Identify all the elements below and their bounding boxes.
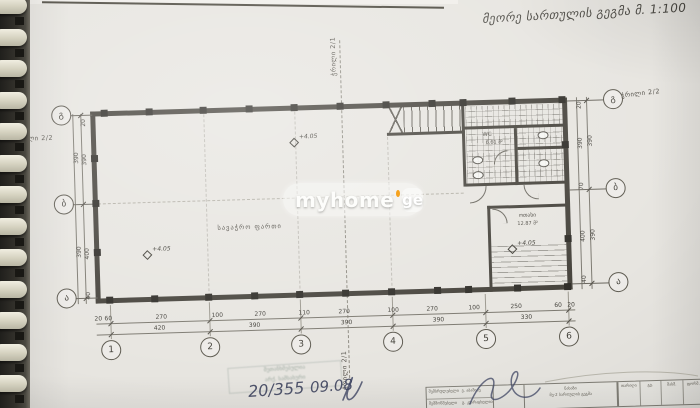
column-marker	[428, 100, 435, 107]
dim-label: 270	[254, 311, 266, 318]
wall-bottom	[96, 284, 573, 303]
stair-break-mark	[386, 106, 405, 133]
comb-binding	[0, 0, 30, 408]
wc-area: 6.61 მ²	[485, 139, 503, 146]
grid-bubble-column: 3	[291, 334, 312, 355]
binding-ring	[0, 92, 27, 109]
binding-slot	[15, 364, 24, 372]
section-label-top: ჭრილი 2/1	[329, 37, 338, 76]
column-marker	[106, 297, 113, 304]
dim-label: 390	[341, 319, 353, 326]
dim-line	[576, 97, 583, 289]
elevation-value: +4.05	[152, 245, 171, 253]
binding-ring	[0, 218, 27, 235]
centerline	[203, 114, 209, 296]
title-block-signature-space	[493, 385, 525, 408]
tb-col-header: თარიღი	[618, 381, 640, 406]
column-marker	[459, 99, 466, 106]
tb-name: ვ. აბაშიძე	[459, 386, 492, 398]
binding-ring	[0, 312, 27, 329]
column-marker	[336, 103, 343, 110]
room-label: ოთახი	[519, 212, 536, 219]
binding-ring	[0, 29, 27, 46]
handwritten-date: 09.08	[309, 376, 353, 397]
dim-label: 270	[426, 305, 438, 312]
hall-label: სავაჭრო ფართი	[217, 222, 282, 232]
column-marker	[514, 284, 521, 291]
column-marker	[151, 295, 158, 302]
grid-bubble-row: ბ	[605, 178, 626, 199]
tb-col-header: ფორმ.	[683, 380, 700, 405]
tb-name: გ. კვარაცხელია	[460, 398, 493, 408]
dim-label: 390	[589, 229, 596, 241]
elevation-value: +4.05	[299, 133, 318, 141]
binding-ring	[0, 155, 27, 172]
binding-ring	[0, 60, 27, 77]
binding-slot	[15, 80, 24, 88]
door-arc	[470, 186, 487, 203]
column-marker	[465, 286, 472, 293]
grid-bubble-column: 1	[101, 340, 122, 361]
binding-slot	[15, 143, 24, 151]
door-arc	[524, 184, 539, 199]
column-marker	[251, 292, 258, 299]
wc-label: WC	[482, 132, 491, 138]
dim-label: 390	[587, 135, 594, 147]
tb-role: შემსრულებელი	[426, 387, 459, 399]
binding-ring	[0, 249, 27, 266]
wall-left	[90, 112, 101, 304]
binding-slot	[15, 49, 24, 57]
grid-bubble-row: გ	[51, 105, 72, 126]
binding-slot	[15, 238, 24, 246]
dim-label: 400	[84, 248, 91, 260]
column-marker	[92, 200, 99, 207]
dim-label: 40	[581, 275, 588, 283]
watermark-tld: ge	[402, 188, 423, 212]
watermark-dot-icon	[396, 190, 400, 197]
column-marker	[101, 110, 108, 117]
dim-label: 20	[80, 119, 87, 127]
binding-ring	[0, 123, 27, 140]
elevation-mark-icon	[142, 250, 152, 260]
title-block: შემსრულებელივ. აბაშიძე შემმოწმებელიგ. კვ…	[425, 379, 700, 408]
grid-bubble-row: ბ	[54, 194, 75, 215]
grid-bubble-row: ა	[608, 272, 629, 293]
watermark-brand: myhome	[295, 188, 394, 212]
column-marker	[388, 288, 395, 295]
room-hatch	[491, 241, 567, 289]
dim-label: 100	[468, 304, 480, 311]
staircase	[403, 105, 464, 133]
dim-label: 70	[578, 182, 585, 190]
column-marker	[200, 107, 207, 114]
dim-label: 390	[73, 152, 80, 164]
dim-label: 390	[76, 246, 83, 258]
dim-label: 60	[104, 315, 112, 322]
column-marker	[562, 141, 569, 148]
dim-label: 420	[154, 325, 166, 332]
binding-ring	[0, 344, 27, 361]
dim-label: 390	[433, 316, 445, 323]
column-marker	[246, 105, 253, 112]
watermark: myhome ge	[283, 183, 423, 216]
column-marker	[564, 283, 571, 290]
column-marker	[296, 291, 303, 298]
dim-label: 100	[387, 307, 399, 314]
dim-label: 270	[338, 308, 350, 315]
grid-bubble-column: 2	[200, 337, 221, 358]
binding-slot	[15, 301, 24, 309]
binding-slot	[15, 332, 24, 340]
binding-ring	[0, 186, 27, 203]
dim-label: 110	[298, 309, 310, 316]
column-marker	[342, 290, 349, 297]
column-marker	[146, 108, 153, 115]
dim-label: 330	[521, 314, 533, 321]
binding-slot	[15, 206, 24, 214]
photo-of-floor-plan: მეორე სართულის გეგმა მ. 1:100 ჭრილი 2/1 …	[0, 0, 700, 408]
elevation-mark-icon	[289, 138, 299, 148]
door-arc	[492, 208, 507, 223]
dim-label: 400	[579, 230, 586, 242]
dim-line	[80, 114, 87, 304]
tb-col-header: გვ.	[640, 381, 662, 406]
binding-slot	[15, 112, 24, 120]
grid-bubble-column: 5	[476, 329, 497, 350]
column-marker	[508, 98, 515, 105]
column-marker	[558, 96, 565, 103]
binding-slot	[15, 17, 24, 25]
grid-bubble-row: ა	[56, 288, 77, 309]
tb-col-header: მასშ.	[661, 380, 683, 405]
column-marker	[382, 101, 389, 108]
dim-label: 250	[510, 303, 522, 310]
dim-label: 20	[94, 315, 102, 322]
binding-slot	[15, 395, 24, 403]
dim-label: 20	[576, 101, 583, 109]
dim-label: 100	[211, 312, 223, 319]
dim-line	[97, 320, 576, 335]
binding-ring	[0, 0, 27, 14]
dim-label: 60	[554, 302, 562, 309]
dim-label: 20	[567, 301, 575, 308]
dim-line	[586, 97, 593, 289]
title-block-columns: თარიღიგვ.მასშ.ფორმ.	[618, 380, 700, 407]
column-marker	[94, 249, 101, 256]
grid-bubble-row: გ	[603, 89, 624, 110]
drawing-title: მეორე სართულის გეგმა მ. 1:100	[424, 1, 686, 30]
grid-bubble-column: 4	[383, 331, 404, 352]
grid-bubble-column: 6	[559, 326, 580, 347]
column-marker	[205, 294, 212, 301]
wall-room-top	[487, 204, 567, 209]
dim-label: 390	[81, 154, 88, 166]
handwritten-number: 20/355	[247, 378, 304, 401]
column-marker	[91, 155, 98, 162]
tb-doc-title: მე-2 სართულის გეგმა	[525, 391, 617, 400]
section-label-right: ჭრილი 2/2	[621, 87, 661, 100]
binding-ring	[0, 375, 27, 392]
dim-label: 390	[249, 322, 261, 329]
column-marker	[434, 287, 441, 294]
room-area: 12.87 მ²	[517, 220, 538, 227]
tb-role: შემმოწმებელი	[427, 399, 460, 408]
column-marker	[565, 235, 572, 242]
column-marker	[291, 104, 298, 111]
binding-ring	[0, 281, 27, 298]
dim-line	[72, 114, 79, 304]
title-block-names: შემსრულებელივ. აბაშიძე შემმოწმებელიგ. კვ…	[426, 386, 494, 408]
binding-slot	[15, 175, 24, 183]
binding-slot	[15, 269, 24, 277]
elevation-value: +4.05	[517, 240, 536, 248]
dim-label: 390	[577, 137, 584, 149]
title-block-drawing-name: ნახაზი მე-2 სართულის გეგმა	[524, 382, 619, 408]
dim-label: 270	[155, 313, 167, 320]
dim-label: 40	[85, 292, 92, 300]
